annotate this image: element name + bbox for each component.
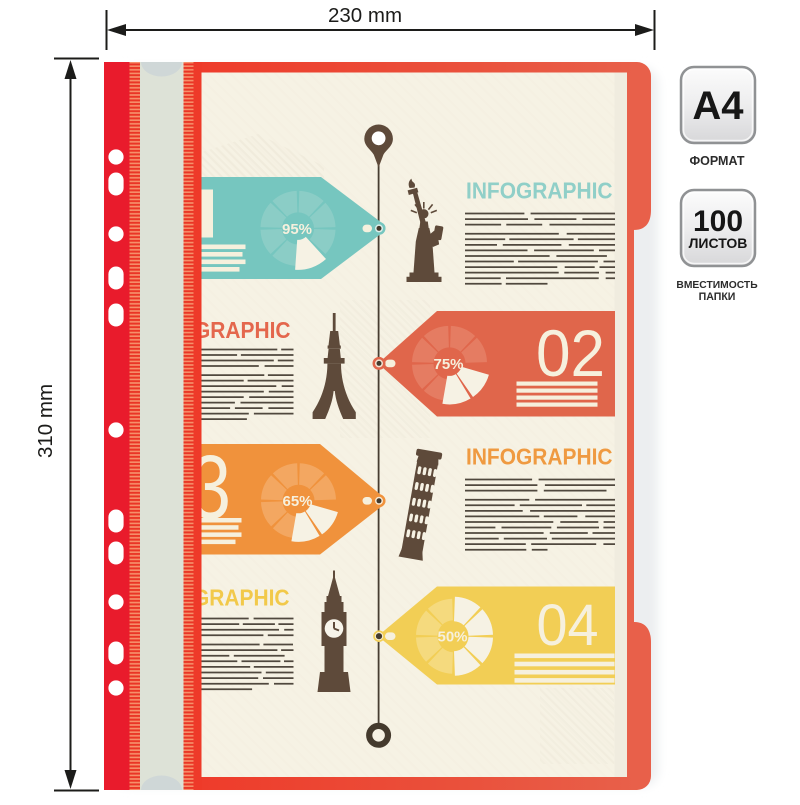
svg-text:04: 04 [537,593,599,658]
svg-text:ЛИСТОВ: ЛИСТОВ [689,235,748,251]
svg-text:А4: А4 [692,84,744,128]
svg-text:50%: 50% [437,629,467,646]
svg-text:230 mm: 230 mm [328,4,402,27]
svg-text:INFOGRAPHIC: INFOGRAPHIC [466,444,613,470]
svg-text:310 mm: 310 mm [34,384,57,458]
svg-text:ФОРМАТ: ФОРМАТ [689,154,744,168]
svg-text:95%: 95% [282,221,312,238]
svg-text:100: 100 [693,205,743,238]
svg-text:INFOGRAPHIC: INFOGRAPHIC [466,178,613,204]
svg-text:65%: 65% [282,493,312,510]
svg-text:ВМЕСТИМОСТЬ: ВМЕСТИМОСТЬ [676,280,758,291]
svg-text:02: 02 [536,316,605,390]
svg-text:75%: 75% [433,356,463,373]
svg-text:ПАПКИ: ПАПКИ [699,291,736,303]
